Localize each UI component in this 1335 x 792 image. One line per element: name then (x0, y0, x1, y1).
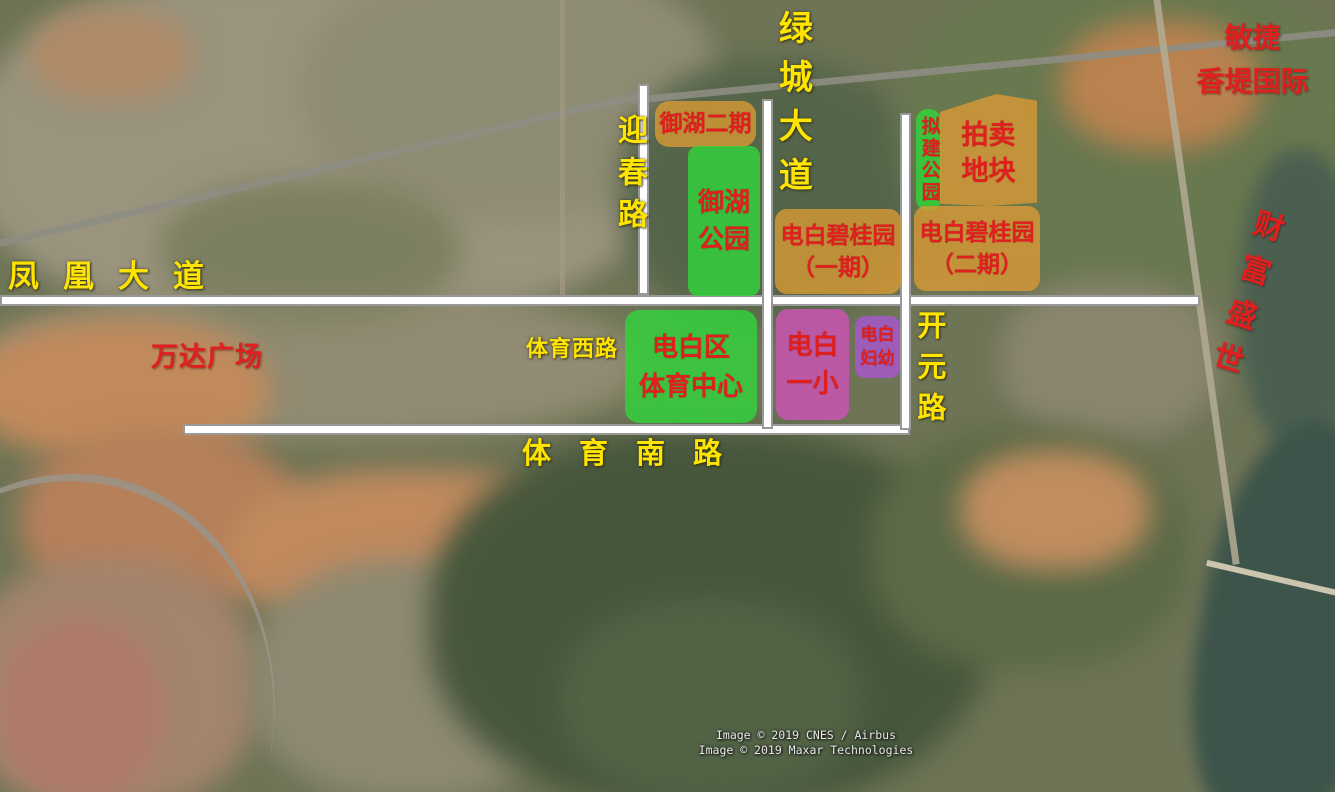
poi-label-wanda-plaza: 万达广场 (151, 343, 263, 373)
poi-label-line: 香堤国际 (1190, 67, 1315, 98)
parcel-no1-primary-school: 电白 一小 (776, 309, 849, 420)
road-line-lvcheng (762, 99, 773, 429)
parcel-label: 电白区 (652, 332, 730, 363)
road-line-fenghuang (0, 295, 1200, 306)
parcel-yuhu-park: 御湖 公园 (688, 146, 760, 296)
satellite-map[interactable]: 御湖二期 御湖 公园 拟建公园 拍卖 地块 电白碧桂园 （一期） 电白碧桂园 （… (0, 0, 1335, 792)
parcel-maternity-hospital: 电白 妇幼 (855, 316, 900, 378)
road-label-tiyu-south-road: 体育南路 (522, 439, 750, 471)
road-label-lvcheng-avenue: 绿城大道 (773, 10, 810, 206)
parcel-label: 电白碧桂园 (781, 222, 896, 249)
parcel-label: 电白碧桂园 (920, 219, 1035, 246)
parcel-auction-plot: 拍卖 地块 (940, 94, 1037, 206)
terrain-dirt-rightcenter (960, 450, 1150, 570)
parcel-sports-center: 电白区 体育中心 (625, 310, 757, 423)
city-road-vertical (560, 0, 565, 300)
imagery-attribution: Image © 2019 CNES / Airbus Image © 2019 … (620, 728, 992, 758)
parcel-label: 御湖 (698, 187, 750, 218)
parcel-bgy-phase2: 电白碧桂园 （二期） (914, 206, 1040, 291)
parcel-label: 妇幼 (861, 349, 895, 369)
parcel-label: 电白 (786, 330, 838, 361)
parcel-label: 公园 (698, 224, 750, 255)
parcel-label: 地块 (962, 156, 1016, 188)
parcel-label: 体育中心 (639, 371, 743, 402)
parcel-label: 一小 (786, 368, 838, 399)
road-label-yingchun-road: 迎春路 (613, 114, 646, 240)
parcel-proposed-park: 拟建公园 (916, 109, 941, 211)
parcel-yuhu-phase2: 御湖二期 (655, 101, 756, 147)
parcel-label: （二期） (931, 251, 1023, 278)
road-line-kaiyuan (900, 113, 911, 430)
poi-label-minjie-xiangdi: 敏捷 香堤国际 (1190, 23, 1315, 98)
road-line-tiyu-south (183, 424, 910, 435)
poi-label-line: 敏捷 (1190, 23, 1315, 54)
road-label-fenghuang-avenue: 凤凰大道 (8, 260, 228, 294)
parcel-label: （一期） (792, 254, 884, 281)
parcel-label: 电白 (861, 325, 895, 345)
parcel-label: 拍卖 (962, 120, 1016, 152)
terrain-forest-bottom2 (560, 600, 860, 792)
attribution-line: Image © 2019 Maxar Technologies (620, 743, 992, 758)
parcel-label: 御湖二期 (660, 110, 752, 137)
parcel-bgy-phase1: 电白碧桂园 （一期） (775, 209, 901, 294)
terrain-dirt-topleft (30, 10, 190, 100)
parcel-label: 拟建公园 (917, 116, 939, 204)
attribution-line: Image © 2019 CNES / Airbus (620, 728, 992, 743)
river (1165, 407, 1335, 792)
road-label-tiyu-west-road: 体育西路 (526, 337, 618, 361)
road-label-kaiyuan-road: 开元路 (912, 310, 944, 433)
